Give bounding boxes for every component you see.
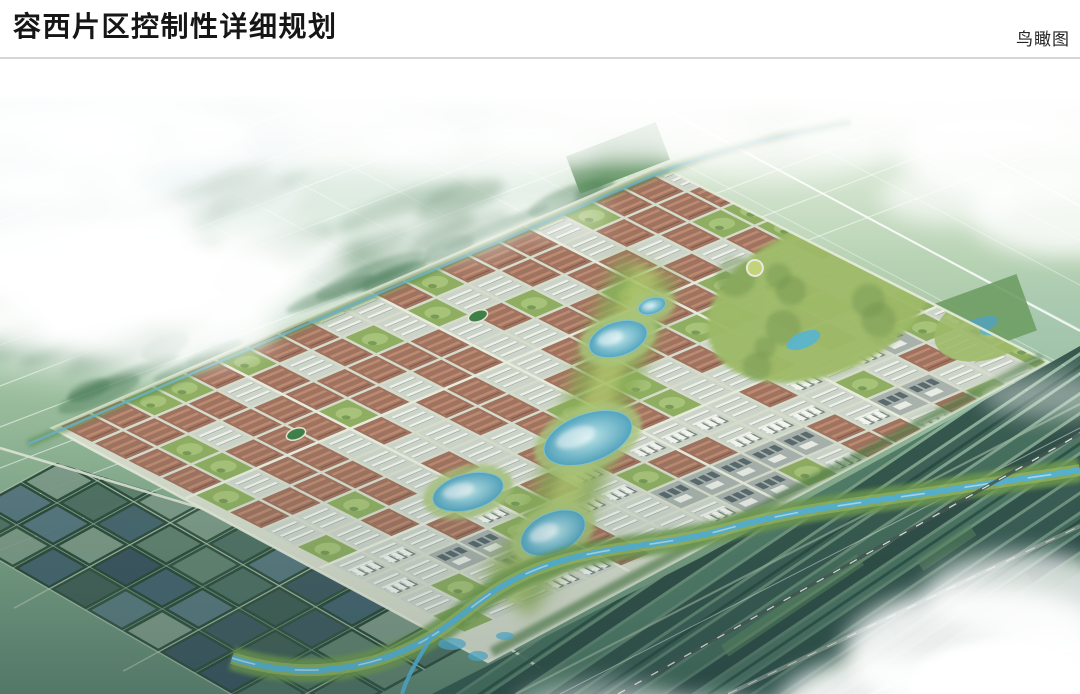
aerial-render-figure <box>0 96 1080 694</box>
header-divider <box>0 57 1080 59</box>
view-caption: 鸟瞰图 <box>1016 25 1070 50</box>
masterplan-birdseye-image <box>0 96 1080 694</box>
header: 容西片区控制性详细规划 鸟瞰图 <box>0 0 1080 57</box>
page-title: 容西片区控制性详细规划 <box>13 5 338 45</box>
page: 容西片区控制性详细规划 鸟瞰图 <box>0 0 1080 694</box>
